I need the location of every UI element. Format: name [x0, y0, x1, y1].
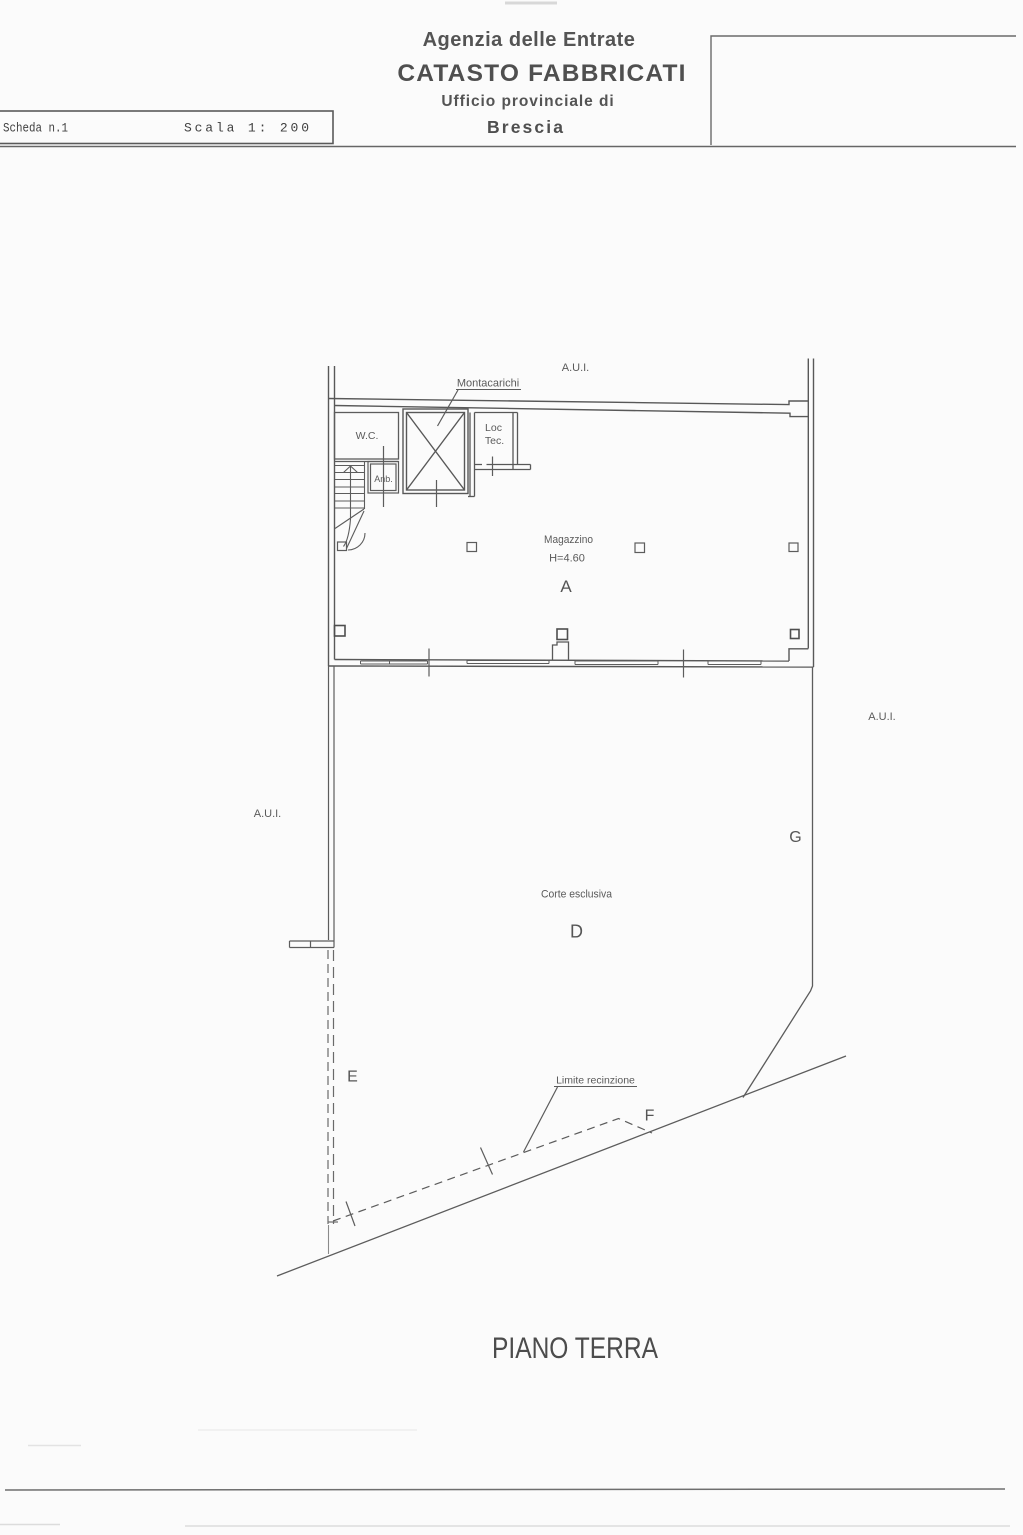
svg-text:E: E — [347, 1069, 358, 1086]
svg-text:D: D — [570, 922, 583, 942]
svg-text:Magazzino: Magazzino — [544, 534, 593, 546]
svg-text:Montacarichi: Montacarichi — [457, 378, 519, 390]
svg-text:A.U.I.: A.U.I. — [868, 711, 896, 723]
svg-text:H=4.60: H=4.60 — [549, 553, 585, 565]
svg-text:Tec.: Tec. — [485, 435, 504, 447]
svg-text:Loc: Loc — [485, 422, 502, 434]
svg-text:Limite recinzione: Limite recinzione — [556, 1075, 635, 1087]
svg-text:Corte esclusiva: Corte esclusiva — [541, 889, 613, 901]
svg-text:W.C.: W.C. — [356, 430, 379, 442]
svg-text:Ufficio provinciale di: Ufficio provinciale di — [441, 93, 614, 110]
svg-text:A: A — [560, 577, 572, 596]
svg-text:A.U.I.: A.U.I. — [562, 362, 590, 374]
svg-text:Brescia: Brescia — [487, 117, 563, 137]
svg-text:F: F — [645, 1108, 655, 1125]
svg-text:Agenzia delle Entrate: Agenzia delle Entrate — [423, 29, 636, 51]
svg-text:G: G — [789, 829, 801, 846]
svg-text:CATASTO FABBRICATI: CATASTO FABBRICATI — [397, 60, 686, 87]
svg-text:A.U.I.: A.U.I. — [254, 808, 282, 820]
svg-text:PIANO TERRA: PIANO TERRA — [492, 1332, 658, 1365]
svg-text:Scheda n.1: Scheda n.1 — [3, 121, 68, 136]
svg-text:Scala 1: 200: Scala 1: 200 — [184, 121, 309, 136]
